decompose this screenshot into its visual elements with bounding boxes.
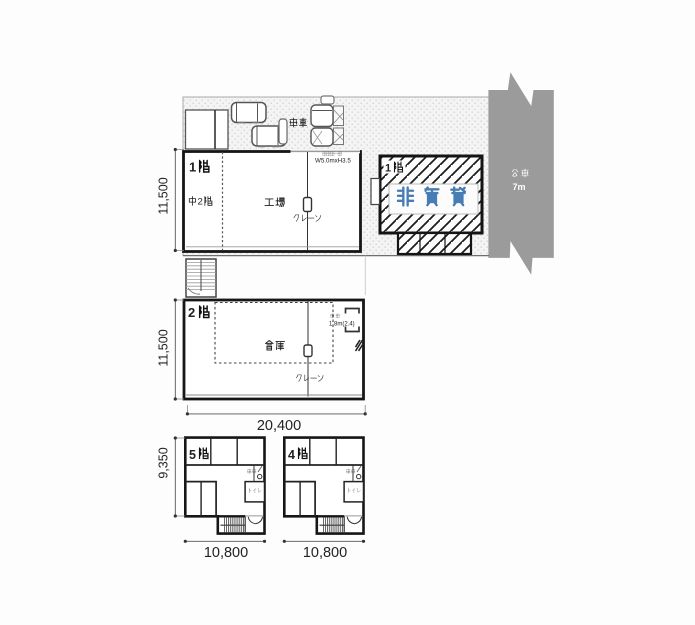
svg-text:2: 2 [188,305,195,320]
svg-text:11,500: 11,500 [157,177,171,214]
svg-text:5: 5 [189,448,196,462]
svg-text:W5.0mxH3.5: W5.0mxH3.5 [315,158,351,165]
svg-text:20,400: 20,400 [257,418,301,434]
svg-text:7m: 7m [513,182,526,192]
svg-text:11,500: 11,500 [157,329,171,366]
svg-text:1.8m(2.4): 1.8m(2.4) [329,322,355,328]
svg-text:4: 4 [288,448,295,462]
svg-text:1: 1 [189,160,196,175]
svg-text:2: 2 [198,197,203,208]
svg-text:9,350: 9,350 [157,447,171,478]
svg-text:1: 1 [385,163,391,175]
svg-text:10,800: 10,800 [204,545,248,561]
svg-text:10,800: 10,800 [303,545,347,561]
